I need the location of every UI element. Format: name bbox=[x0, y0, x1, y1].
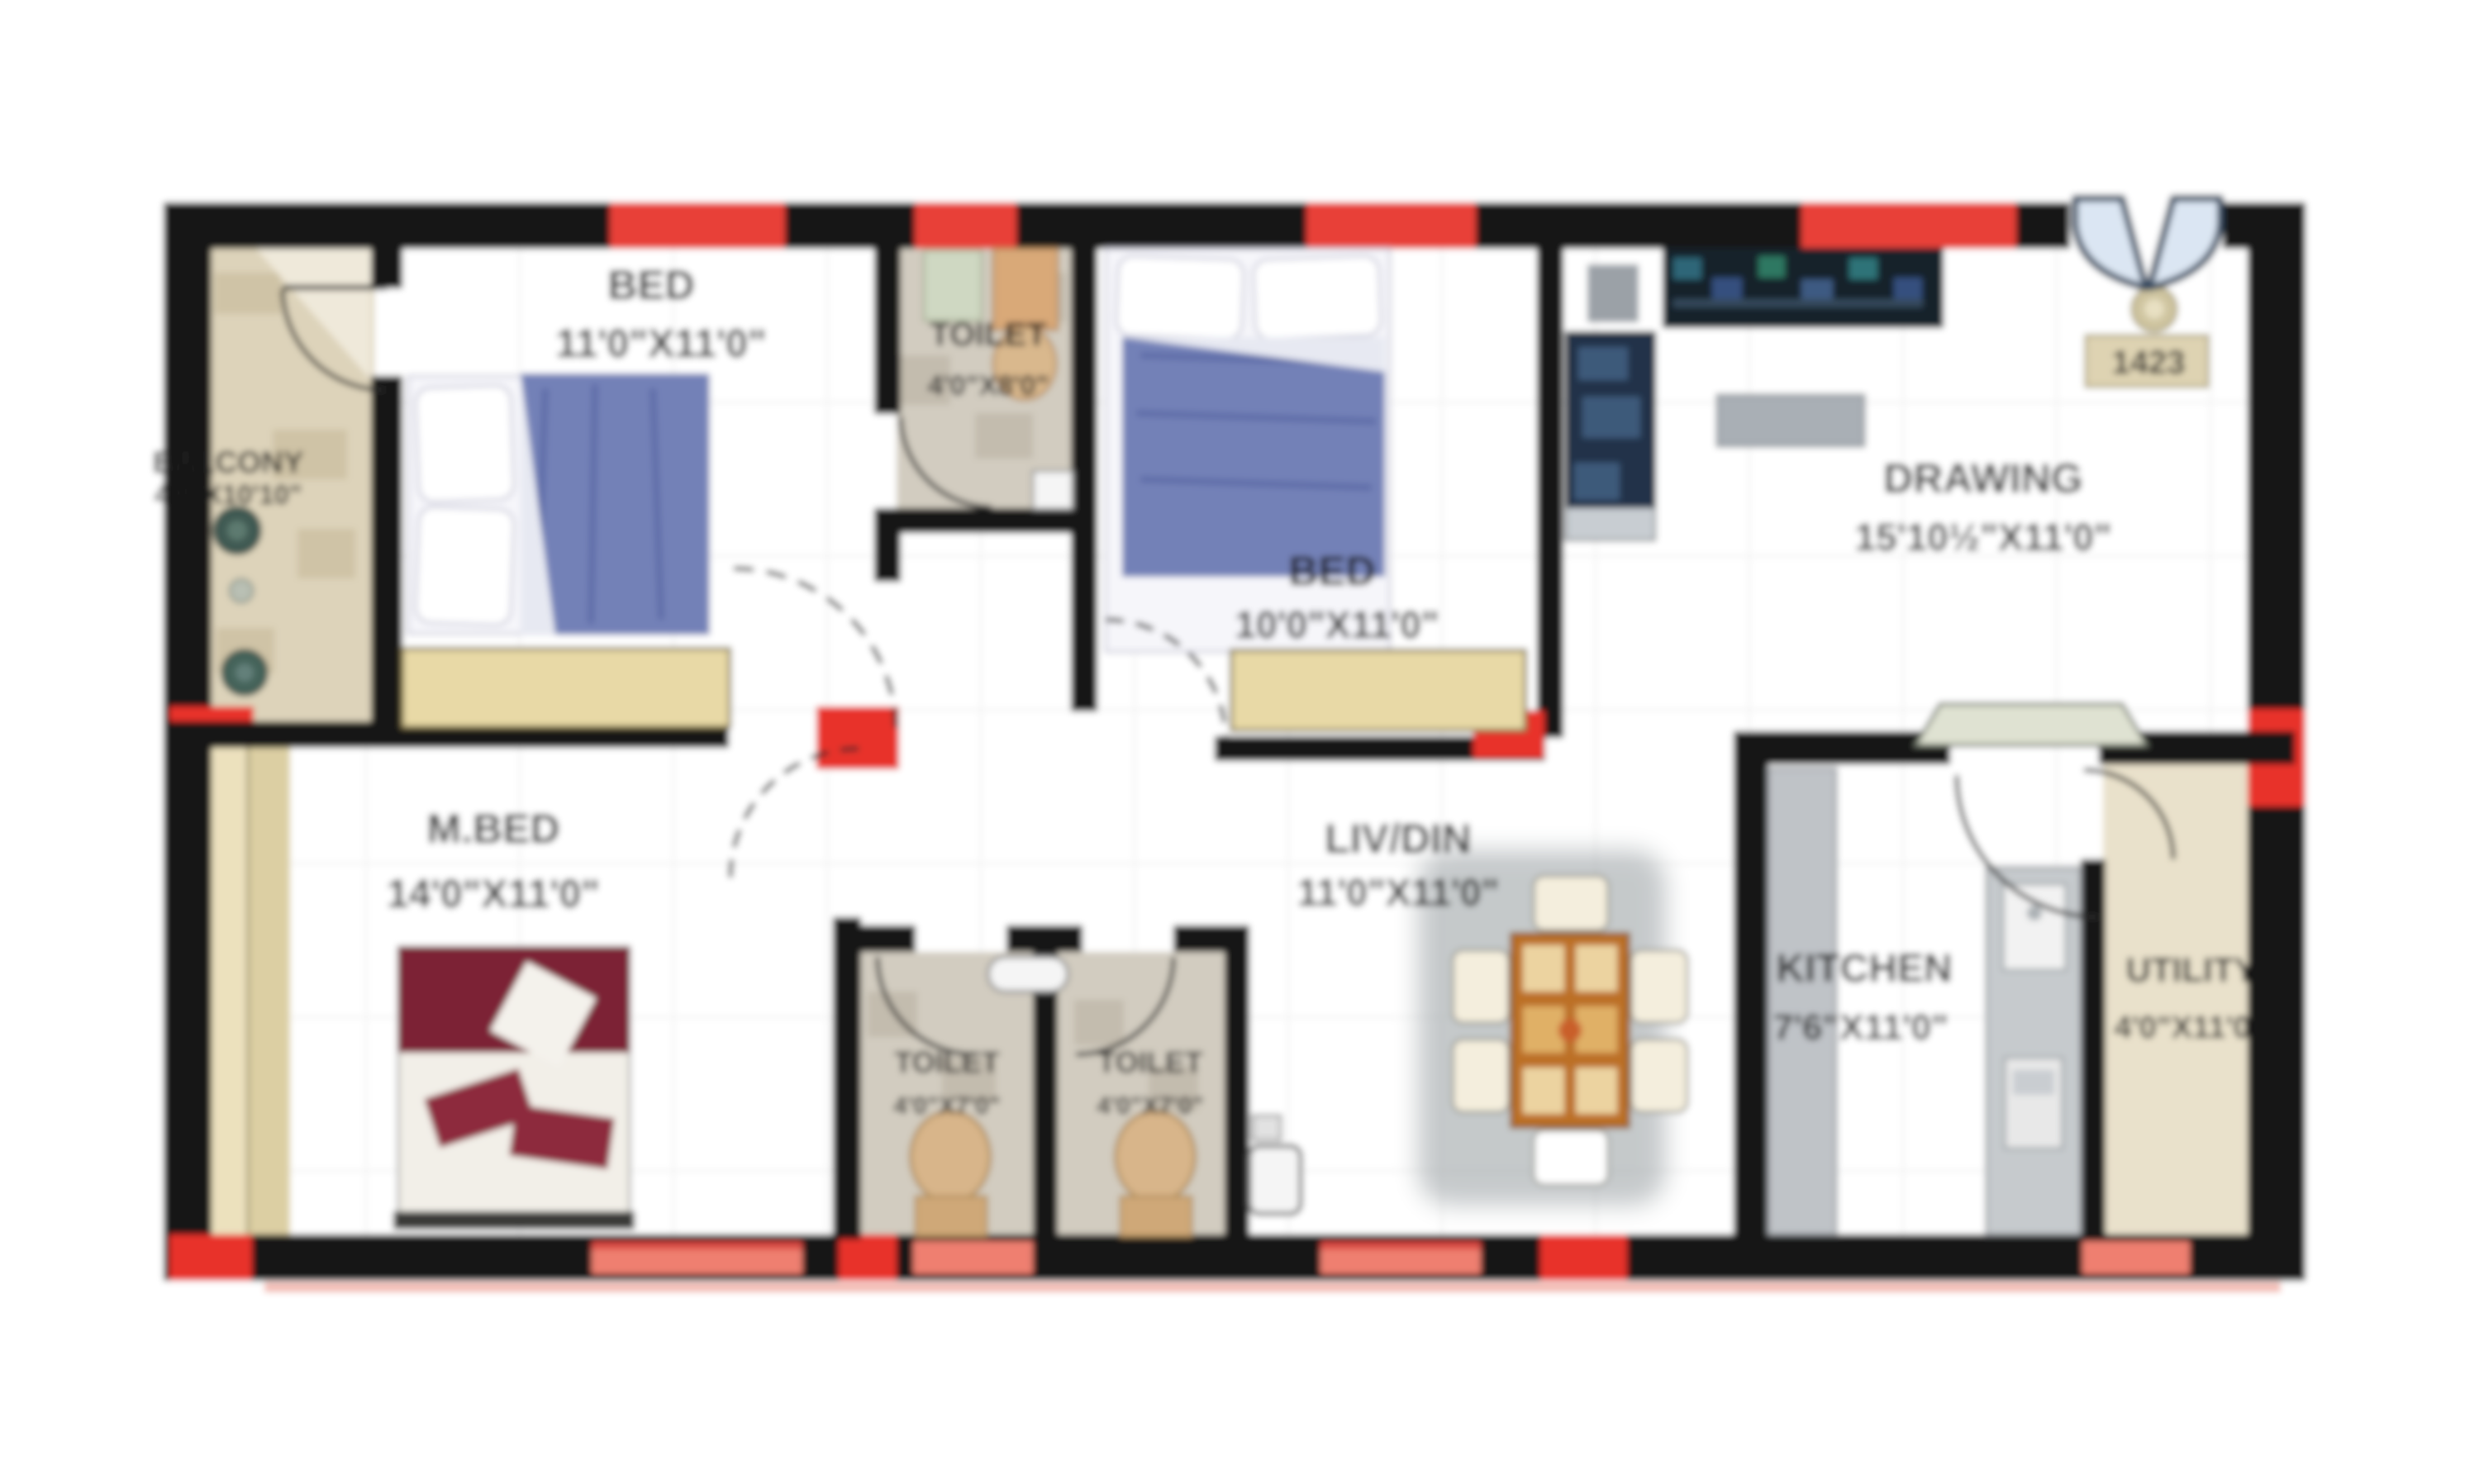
svg-text:TOILET: TOILET bbox=[1097, 1045, 1202, 1079]
svg-text:KITCHEN: KITCHEN bbox=[1776, 947, 1952, 991]
svg-text:4'0"X7'0": 4'0"X7'0" bbox=[1097, 1092, 1203, 1120]
svg-text:4'0"X7'0": 4'0"X7'0" bbox=[893, 1092, 1000, 1120]
svg-text:10'0"X11'0": 10'0"X11'0" bbox=[1235, 603, 1439, 646]
svg-text:1423: 1423 bbox=[2112, 345, 2186, 381]
svg-text:4'6"X10'10": 4'6"X10'10" bbox=[154, 479, 302, 510]
svg-text:UTILITY: UTILITY bbox=[2126, 950, 2258, 989]
svg-text:M.BED: M.BED bbox=[426, 806, 559, 852]
svg-text:TOILET: TOILET bbox=[930, 316, 1046, 353]
svg-text:DRAWING: DRAWING bbox=[1883, 455, 2083, 502]
svg-text:7'6"X11'0": 7'6"X11'0" bbox=[1773, 1007, 1948, 1048]
svg-text:LIV/DIN: LIV/DIN bbox=[1325, 816, 1472, 862]
svg-text:11'0"X11'0": 11'0"X11'0" bbox=[1297, 871, 1500, 914]
svg-text:TOILET: TOILET bbox=[894, 1045, 999, 1079]
svg-text:4'0"X11'0": 4'0"X11'0" bbox=[2114, 1011, 2265, 1045]
svg-text:14'0"X11'0": 14'0"X11'0" bbox=[387, 873, 600, 916]
svg-text:15'10½"X11'0": 15'10½"X11'0" bbox=[1854, 516, 2111, 559]
svg-text:4'0"X8'0": 4'0"X8'0" bbox=[928, 370, 1049, 402]
svg-text:BALCONY: BALCONY bbox=[153, 445, 304, 479]
svg-text:BED: BED bbox=[1288, 548, 1376, 594]
svg-text:11'0"X11'0": 11'0"X11'0" bbox=[555, 322, 766, 366]
svg-text:BED: BED bbox=[607, 262, 695, 308]
